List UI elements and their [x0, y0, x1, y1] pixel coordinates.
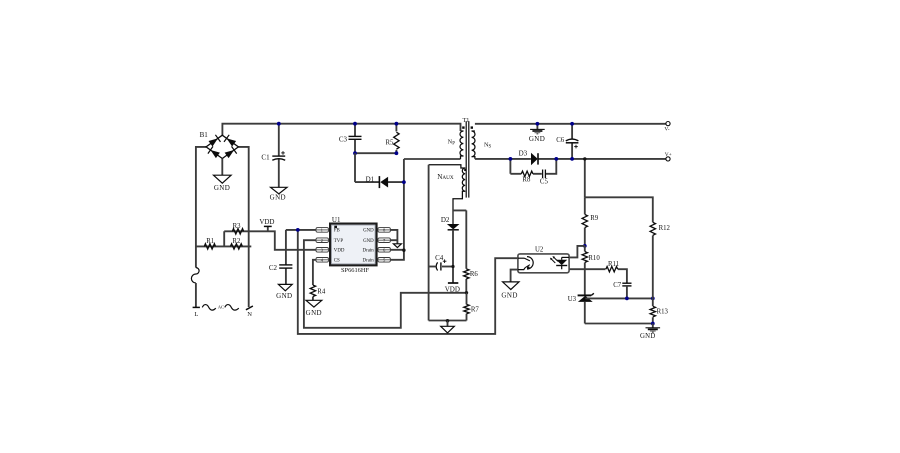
svg-text:R4: R4 — [317, 289, 326, 296]
svg-text:D1: D1 — [366, 175, 375, 183]
svg-text:R7: R7 — [471, 306, 480, 313]
svg-text:Drain: Drain — [363, 249, 375, 254]
svg-text:GND: GND — [214, 184, 230, 192]
svg-text:8: 8 — [383, 228, 385, 233]
svg-text:V-: V- — [664, 126, 669, 132]
svg-text:VDD: VDD — [334, 249, 345, 254]
svg-text:AC: AC — [218, 304, 224, 309]
svg-text:SP6616HF: SP6616HF — [341, 267, 370, 274]
svg-text:R2: R2 — [232, 238, 241, 245]
svg-text:R13: R13 — [657, 309, 669, 316]
svg-text:R3: R3 — [233, 223, 242, 230]
svg-text:R8: R8 — [522, 177, 531, 184]
svg-text:GND: GND — [276, 292, 292, 300]
svg-text:C2: C2 — [269, 264, 278, 272]
svg-text:GND: GND — [270, 193, 286, 201]
svg-text:L: L — [194, 311, 198, 318]
svg-text:3: 3 — [321, 247, 323, 252]
svg-text:GND: GND — [640, 333, 656, 340]
svg-text:Drain: Drain — [363, 259, 375, 264]
svg-text:VDD: VDD — [445, 285, 460, 293]
svg-text:U1: U1 — [332, 216, 341, 224]
svg-text:C5: C5 — [540, 179, 549, 186]
svg-text:T1: T1 — [462, 117, 469, 124]
svg-text:R10: R10 — [588, 255, 600, 262]
svg-text:C7: C7 — [613, 282, 622, 289]
svg-text:GND: GND — [501, 291, 517, 299]
svg-text:VDD: VDD — [259, 218, 274, 226]
svg-text:R6: R6 — [470, 271, 479, 278]
svg-text:2: 2 — [321, 238, 323, 243]
svg-text:NAUX: NAUX — [437, 173, 454, 181]
svg-text:GND: GND — [529, 135, 545, 143]
svg-text:U2: U2 — [535, 247, 544, 254]
svg-text:GND: GND — [363, 239, 374, 244]
svg-text:GND: GND — [306, 309, 322, 317]
svg-text:GND: GND — [363, 229, 374, 234]
svg-text:FB: FB — [334, 229, 341, 234]
svg-text:5: 5 — [383, 257, 385, 262]
svg-text:B1: B1 — [200, 131, 209, 139]
svg-text:C6: C6 — [556, 137, 565, 144]
svg-text:R11: R11 — [608, 261, 619, 268]
svg-text:C4: C4 — [435, 254, 444, 262]
svg-text:C1: C1 — [261, 154, 270, 162]
svg-text:D3: D3 — [519, 149, 528, 157]
svg-text:CS: CS — [334, 259, 340, 264]
svg-text:D2: D2 — [441, 216, 450, 224]
svg-text:R5: R5 — [385, 139, 394, 146]
svg-text:N: N — [247, 311, 252, 318]
svg-text:R12: R12 — [659, 225, 671, 232]
svg-text:TVP: TVP — [334, 239, 344, 244]
svg-text:1: 1 — [321, 228, 323, 233]
svg-text:U3: U3 — [568, 296, 577, 303]
svg-text:R1: R1 — [206, 238, 214, 245]
svg-text:V+: V+ — [665, 152, 672, 158]
svg-text:R9: R9 — [590, 215, 599, 222]
svg-text:C3: C3 — [339, 136, 348, 144]
